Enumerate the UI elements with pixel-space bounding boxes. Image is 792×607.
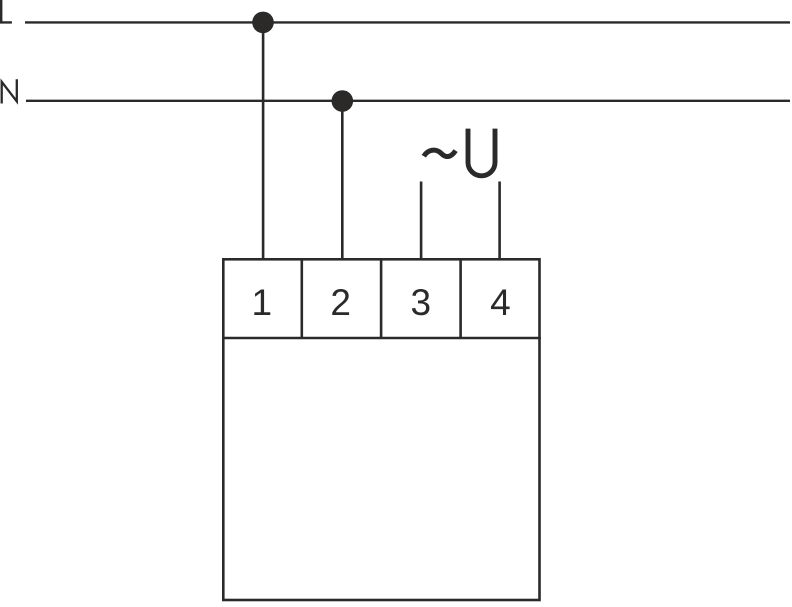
svg-text:2: 2 xyxy=(330,282,351,323)
svg-text:1: 1 xyxy=(252,282,273,323)
svg-text:4: 4 xyxy=(490,282,511,323)
svg-text:3: 3 xyxy=(411,282,432,323)
